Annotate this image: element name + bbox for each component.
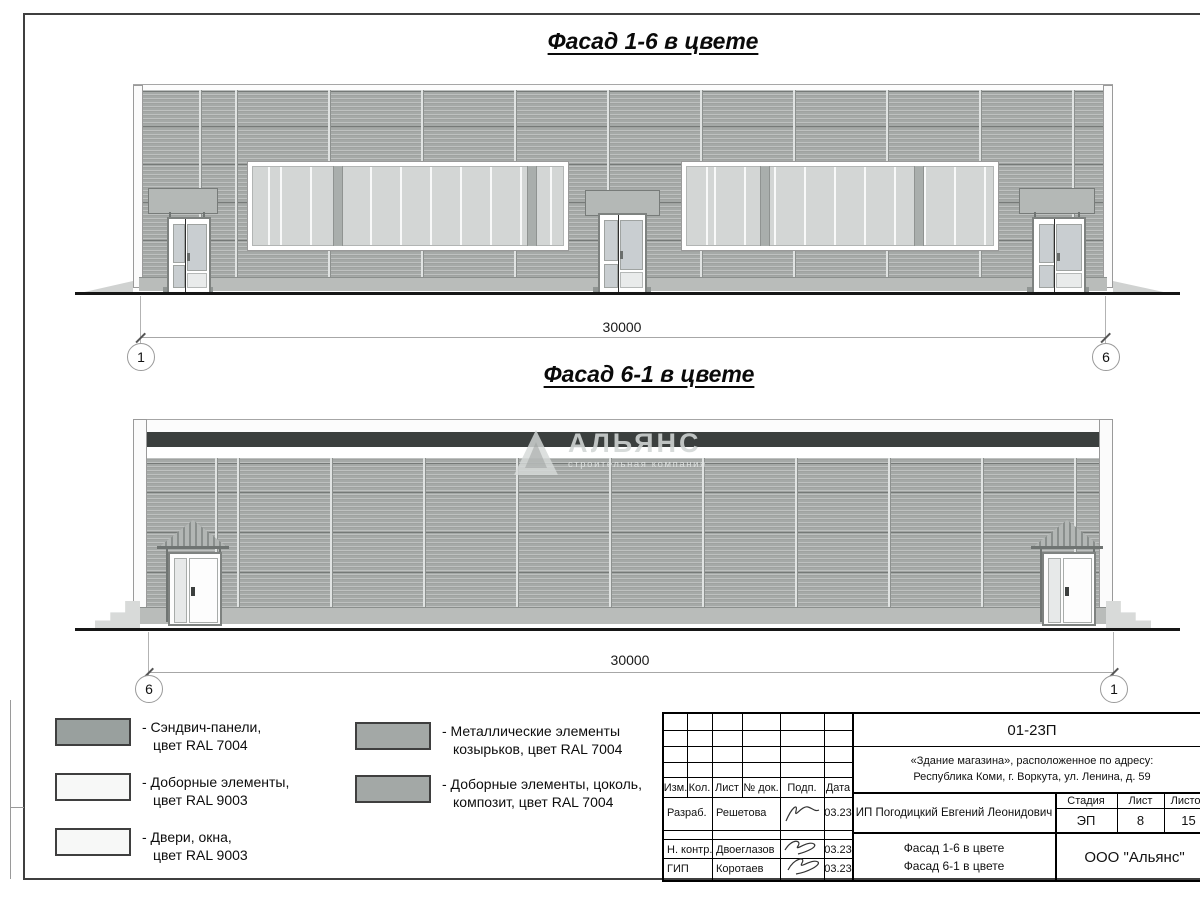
legend-line2: козырьков, цвет RAL 7004 bbox=[453, 741, 622, 759]
sheet-frame-left bbox=[23, 13, 25, 880]
sheet-margin-tick bbox=[10, 807, 24, 808]
stamp-col-list: Лист bbox=[712, 778, 742, 797]
sandwich-panel-wall bbox=[147, 458, 1099, 607]
door-sidelight bbox=[174, 558, 187, 623]
door-glazing bbox=[604, 264, 618, 288]
stamp-name-korotaev: Коротаев bbox=[716, 861, 778, 877]
stamp-address-line2: Республика Коми, г. Воркута, ул. Ленина,… bbox=[913, 770, 1150, 785]
stamp-line bbox=[852, 746, 1200, 747]
stamp-line bbox=[664, 730, 852, 731]
door-leaf-divider bbox=[185, 219, 186, 292]
legend-line1: - Доборные элементы, цоколь, bbox=[442, 776, 642, 792]
stamp-role-nkontr: Н. контр. bbox=[667, 842, 715, 858]
ground-line-facade-6-1 bbox=[75, 628, 1180, 631]
legend-line1: - Доборные элементы, bbox=[142, 774, 289, 790]
flat-canopy-right bbox=[1019, 188, 1095, 214]
legend-swatch-doors-windows bbox=[55, 828, 131, 856]
window-mullion bbox=[760, 166, 770, 246]
sheet-margin-line bbox=[10, 700, 11, 879]
ground-line-facade-1-6 bbox=[75, 292, 1180, 295]
legend-line2: цвет RAL 9003 bbox=[153, 847, 248, 865]
window-mullion bbox=[914, 166, 924, 246]
flat-canopy-left bbox=[148, 188, 218, 214]
stamp-date: 03.23 bbox=[824, 842, 852, 858]
stamp-date: 03.23 bbox=[824, 805, 852, 821]
axis-marker-6: 6 bbox=[135, 675, 163, 703]
stamp-name-dvoeglazov: Двоеглазов bbox=[716, 842, 778, 858]
window-mullion bbox=[527, 166, 537, 246]
rear-door-left bbox=[168, 552, 222, 626]
dark-parapet-band bbox=[147, 432, 1099, 447]
legend-swatch-canopy-metal bbox=[355, 722, 431, 750]
stamp-stage-header: Стадия bbox=[1057, 794, 1115, 808]
drawing-sheet: Фасад 1-6 в цвете Фасад 6-1 в цвете bbox=[0, 0, 1200, 900]
signature-squiggle bbox=[780, 836, 824, 878]
door-panel bbox=[1056, 273, 1082, 288]
door-leaf-divider bbox=[1054, 219, 1055, 292]
dimension-line bbox=[148, 672, 1113, 673]
facade-1-6-drawing bbox=[133, 84, 1113, 293]
door-glazing bbox=[1039, 224, 1054, 263]
parapet-flashing bbox=[133, 419, 1113, 433]
stamp-org: ООО "Альянс" bbox=[1057, 835, 1200, 879]
door-handle bbox=[1057, 253, 1060, 261]
rear-door-right bbox=[1042, 552, 1096, 626]
facade-6-1-drawing bbox=[133, 416, 1113, 628]
door-glazing bbox=[620, 220, 643, 270]
door-glazing bbox=[1039, 265, 1054, 288]
stamp-sheets-header: Листов bbox=[1165, 794, 1200, 808]
stamp-role-razrab: Разраб. bbox=[667, 805, 713, 821]
legend-line1: - Сэндвич-панели, bbox=[142, 719, 261, 735]
door-leaf-divider bbox=[618, 215, 619, 292]
door-glazing bbox=[1056, 224, 1082, 271]
window-band-right bbox=[682, 162, 998, 250]
door-sidelight bbox=[1048, 558, 1061, 623]
corner-trim-left bbox=[133, 85, 143, 288]
stamp-date: 03.23 bbox=[824, 861, 852, 877]
stamp-sheet-header: Лист bbox=[1118, 794, 1163, 808]
legend-label: - Доборные элементы,цвет RAL 9003 bbox=[142, 774, 289, 810]
stamp-col-podp: Подп. bbox=[780, 778, 824, 797]
door-glazing bbox=[173, 224, 185, 263]
legend-line1: - Двери, окна, bbox=[142, 829, 232, 845]
stamp-drawing-title2: Фасад 6-1 в цвете bbox=[904, 857, 1005, 875]
facade-6-1-title: Фасад 6-1 в цвете bbox=[399, 361, 899, 388]
stamp-object-address: «Здание магазина», расположенное по адре… bbox=[854, 748, 1200, 791]
legend-line2: цвет RAL 9003 bbox=[153, 792, 289, 810]
stamp-col-kol: Кол. bbox=[687, 778, 712, 797]
stamp-col-data: Дата bbox=[824, 778, 852, 797]
legend-label: - Доборные элементы, цоколь,композит, цв… bbox=[442, 776, 642, 812]
stamp-stage-value: ЭП bbox=[1057, 809, 1115, 831]
plinth-strip bbox=[139, 607, 1107, 624]
window-band-left bbox=[248, 162, 568, 250]
axis-marker-1: 1 bbox=[127, 343, 155, 371]
legend-swatch-trim-elements bbox=[55, 773, 131, 801]
signature-squiggle bbox=[782, 799, 822, 827]
stamp-client: ИП Погодицкий Евгений Леонидович bbox=[854, 795, 1054, 831]
stamp-doc-code: 01-23П bbox=[854, 716, 1200, 745]
entrance-door-right bbox=[1032, 217, 1086, 294]
stamp-sheets-value: 15 bbox=[1165, 809, 1200, 831]
axis-marker-6: 6 bbox=[1092, 343, 1120, 371]
entry-steps-left bbox=[95, 601, 140, 628]
door-handle bbox=[1065, 587, 1069, 596]
stamp-address-line1: «Здание магазина», расположенное по адре… bbox=[911, 754, 1154, 769]
facade-1-6-title: Фасад 1-6 в цвете bbox=[403, 28, 903, 55]
stamp-role-gip: ГИП bbox=[667, 861, 713, 877]
legend-line1: - Металлические элементы bbox=[442, 723, 620, 739]
axis-marker-1: 1 bbox=[1100, 675, 1128, 703]
door-glazing bbox=[173, 265, 185, 288]
stamp-drawing-titles: Фасад 1-6 в цвете Фасад 6-1 в цвете bbox=[854, 835, 1054, 879]
entrance-door-left bbox=[167, 217, 211, 294]
stamp-col-ndok: № док. bbox=[742, 778, 780, 797]
door-glazing bbox=[187, 224, 208, 271]
dimension-value: 30000 bbox=[522, 319, 722, 335]
title-block: Изм. Кол. Лист № док. Подп. Дата Разраб.… bbox=[662, 712, 1200, 882]
stamp-col-izm: Изм. bbox=[664, 778, 687, 797]
legend-label: - Сэндвич-панели,цвет RAL 7004 bbox=[142, 719, 261, 755]
stamp-line bbox=[664, 830, 852, 831]
door-handle bbox=[620, 251, 623, 259]
stamp-line bbox=[664, 746, 852, 747]
dimension-line bbox=[140, 337, 1105, 338]
stamp-sheet-value: 8 bbox=[1118, 809, 1163, 831]
entrance-door-center bbox=[598, 213, 647, 294]
sheet-frame-top bbox=[23, 13, 1200, 15]
stamp-line bbox=[664, 797, 852, 798]
legend-label: - Двери, окна,цвет RAL 9003 bbox=[142, 829, 248, 865]
legend-line2: композит, цвет RAL 7004 bbox=[453, 794, 642, 812]
stamp-drawing-title1: Фасад 1-6 в цвете bbox=[904, 839, 1005, 857]
corner-trim-right bbox=[1099, 419, 1113, 611]
corner-trim-right bbox=[1103, 85, 1113, 288]
door-handle bbox=[187, 253, 190, 261]
legend-swatch-sandwich-panels bbox=[55, 718, 131, 746]
legend-label: - Металлические элементыкозырьков, цвет … bbox=[442, 723, 622, 759]
door-panel bbox=[620, 272, 643, 288]
legend-swatch-plinth-composite bbox=[355, 775, 431, 803]
door-handle bbox=[191, 587, 195, 596]
legend-line2: цвет RAL 7004 bbox=[153, 737, 261, 755]
stamp-line bbox=[852, 832, 1200, 834]
entry-steps-right bbox=[1106, 601, 1151, 628]
stamp-line bbox=[664, 762, 852, 763]
corner-trim-left bbox=[133, 419, 147, 611]
door-panel bbox=[187, 273, 208, 288]
dimension-value: 30000 bbox=[530, 652, 730, 668]
stamp-name-reshetova: Решетова bbox=[716, 805, 778, 821]
window-mullion bbox=[333, 166, 343, 246]
door-glazing bbox=[604, 220, 618, 261]
